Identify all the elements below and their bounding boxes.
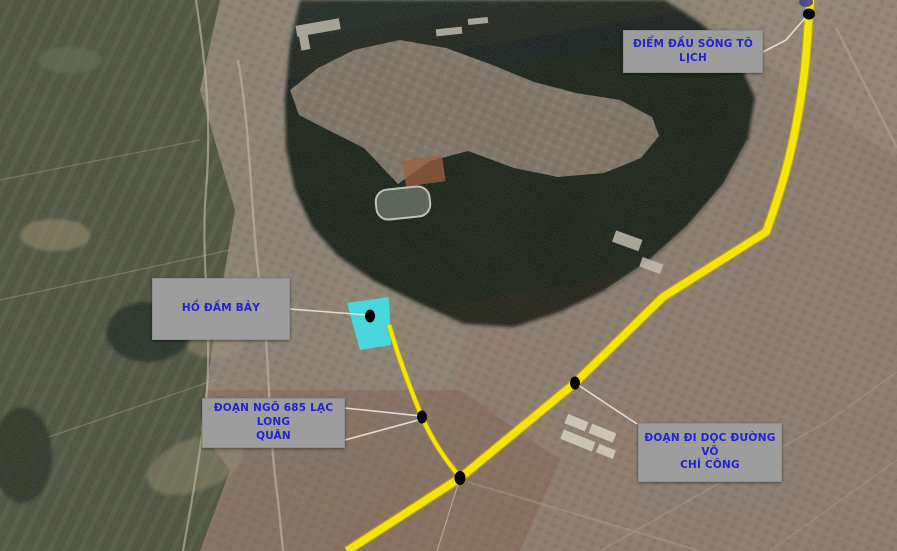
ngo-685-dot: [417, 411, 427, 424]
leader-ngo-685-upper: [345, 408, 421, 416]
annotated-satellite-map: ĐIỂM ĐẦU SÔNG TÔ LỊCH HỒ ĐẦM BẢY ĐOẠN NG…: [0, 0, 897, 551]
route-branch-line: [389, 325, 461, 478]
leader-ngo-685-lower: [345, 419, 422, 440]
route-junction-dot: [455, 471, 466, 485]
route-start-dot: [803, 9, 815, 20]
callout-vo-chi-cong: ĐOẠN ĐI DỌC ĐƯỜNG VÕ CHÍ CÔNG: [638, 423, 782, 482]
highlight-square-ho-dam-bay: [347, 297, 391, 350]
leader-vo-chi-cong: [575, 383, 637, 424]
vo-chi-cong-dot: [570, 377, 580, 390]
leader-start-point: [763, 17, 806, 52]
ho-dam-bay-dot: [365, 310, 375, 323]
route-branch-casing: [389, 325, 461, 478]
callout-ho-dam-bay: HỒ ĐẦM BẢY: [152, 278, 290, 340]
callout-ngo-685: ĐOẠN NGÕ 685 LẠC LONG QUÂN: [202, 398, 345, 448]
callout-start-point: ĐIỂM ĐẦU SÔNG TÔ LỊCH: [623, 30, 763, 73]
